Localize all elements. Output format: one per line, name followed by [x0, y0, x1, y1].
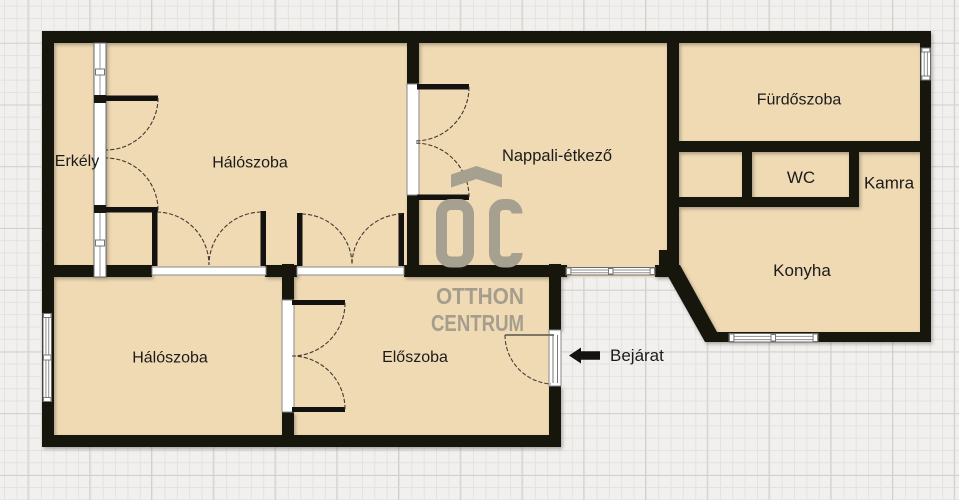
svg-text:OTTHON: OTTHON: [436, 283, 524, 309]
svg-text:Hálószoba: Hálószoba: [212, 155, 288, 172]
svg-text:WC: WC: [787, 168, 815, 187]
svg-text:CENTRUM: CENTRUM: [431, 310, 524, 336]
svg-text:Hálószoba: Hálószoba: [132, 350, 208, 367]
svg-text:Bejárat: Bejárat: [610, 346, 664, 365]
svg-text:Nappali-étkező: Nappali-étkező: [502, 147, 612, 165]
svg-text:Konyha: Konyha: [773, 261, 831, 280]
svg-text:Előszoba: Előszoba: [382, 349, 448, 366]
svg-text:Erkély: Erkély: [55, 153, 99, 170]
svg-text:Kamra: Kamra: [864, 174, 915, 193]
svg-text:Fürdőszoba: Fürdőszoba: [757, 92, 842, 109]
